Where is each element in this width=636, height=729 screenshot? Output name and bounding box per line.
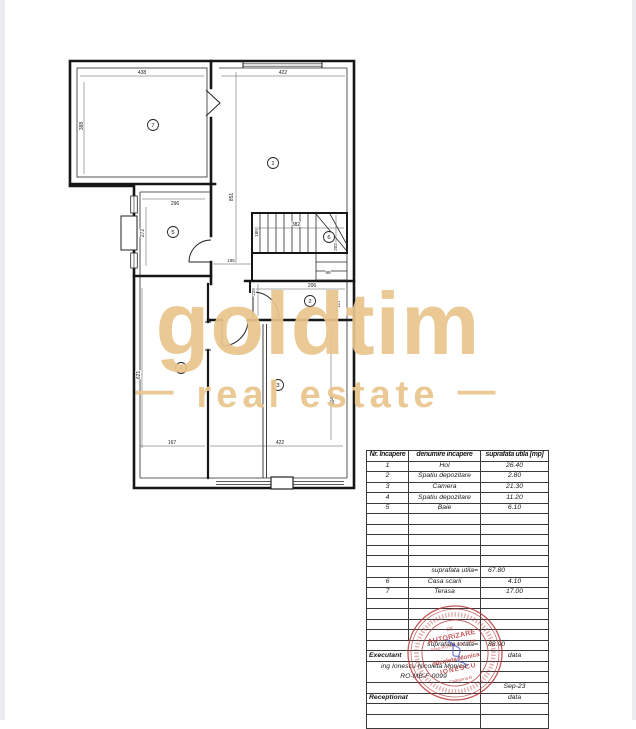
cell-area: 6.10 — [481, 503, 549, 514]
dimension-label: 180 — [254, 229, 259, 237]
door-arc-room5 — [189, 240, 211, 262]
dimension-label: 382 — [292, 222, 301, 228]
svg-text:5: 5 — [171, 230, 174, 236]
cell-nr: 6 — [367, 577, 409, 588]
stamp-rim-text-ring — [409, 607, 500, 698]
dimension-label: 272 — [140, 229, 146, 238]
cell-nr: 4 — [367, 493, 409, 504]
cell-area: 4.10 — [481, 577, 549, 588]
subtotal-label: suprafata utila= — [409, 567, 481, 578]
room-number-1: 1 — [268, 158, 279, 169]
cell-area: 11.20 — [481, 493, 549, 504]
cell-name: Casa scarii — [409, 577, 481, 588]
door-jambs-room4 — [205, 322, 211, 350]
empty-row — [367, 535, 549, 546]
door-opening-symbol — [206, 90, 220, 116]
cell-nr: 2 — [367, 472, 409, 483]
room-number-labels: 7 1 5 6 2 4 3 — [148, 120, 335, 391]
cell-name: Camera — [409, 482, 481, 493]
doors-group — [189, 90, 279, 350]
table-header-row: Nr. Incapere denumire incapere suprafata… — [367, 451, 549, 462]
table-row: 2 Spatiu depozitare 2.80 — [367, 472, 549, 483]
cell-area: 21.30 — [481, 482, 549, 493]
cell-name: Baie — [409, 503, 481, 514]
dimension-label: 117 — [336, 300, 341, 308]
room-number-6: 6 — [324, 232, 335, 243]
dimension-label: 422 — [279, 70, 288, 76]
authorization-stamp: DE AUTORIZARE Seria RO-MB-F, nr. 0099 Ni… — [391, 592, 519, 714]
stamp-text: DE — [446, 626, 455, 633]
dimension-label: 422 — [276, 440, 285, 446]
cell-name: Hol — [409, 461, 481, 472]
cell-area: 2.80 — [481, 472, 549, 483]
empty-row — [367, 556, 549, 567]
window-sill-box — [121, 216, 137, 250]
cell-name: Spatiu depozitare — [409, 493, 481, 504]
dimension-label: 504 — [330, 397, 336, 406]
svg-text:1: 1 — [271, 161, 274, 167]
dimension-lines-group — [80, 72, 345, 448]
svg-text:2: 2 — [308, 299, 311, 305]
empty-row — [367, 514, 549, 525]
cell-nr: 3 — [367, 482, 409, 493]
table-header-name: denumire incapere — [409, 451, 481, 462]
table-header-nr: Nr. Incapere — [367, 451, 409, 462]
subtotal-value: 67.80 — [481, 567, 549, 578]
cell-name: Spatiu depozitare — [409, 472, 481, 483]
table-row: 4 Spatiu depozitare 11.20 — [367, 493, 549, 504]
empty-row — [367, 714, 549, 728]
cell-nr: 1 — [367, 461, 409, 472]
dimension-label: 195 — [227, 258, 235, 263]
table-header-area: suprafata utila [mp] — [481, 451, 549, 462]
table-row: 5 Baie 6.10 — [367, 503, 549, 514]
dimension-label: 229 — [251, 288, 256, 296]
dimension-label: 99 — [325, 270, 331, 275]
room-number-4: 4 — [176, 363, 187, 374]
empty-row — [367, 545, 549, 556]
cell-nr: 5 — [367, 503, 409, 514]
svg-text:7: 7 — [151, 123, 154, 129]
room-number-3: 3 — [273, 380, 284, 391]
window-center-box — [271, 477, 293, 489]
door-arc-room3 — [222, 320, 248, 346]
room-number-7: 7 — [148, 120, 159, 131]
room-number-5: 5 — [168, 227, 179, 238]
table-row: 6 Casa scarii 4.10 — [367, 577, 549, 588]
dimension-label: 167 — [168, 440, 177, 446]
subtotal-row: suprafata utila= 67.80 — [367, 567, 549, 578]
table-row: 3 Camera 21.30 — [367, 482, 549, 493]
room-number-2: 2 — [305, 296, 316, 307]
cell-area: 26.40 — [481, 461, 549, 472]
door-arc-room2 — [253, 292, 279, 318]
dimension-label: 621 — [136, 371, 142, 380]
empty-row — [367, 524, 549, 535]
table-row: 1 Hol 26.40 — [367, 461, 549, 472]
svg-text:3: 3 — [276, 383, 279, 389]
dimension-label: 851 — [229, 193, 235, 202]
dimension-label: 296 — [171, 201, 180, 207]
dimension-label: 388 — [79, 122, 85, 131]
stair-treads — [260, 214, 316, 252]
svg-text:6: 6 — [327, 235, 330, 241]
walls-group — [70, 61, 354, 488]
dimension-label: 438 — [138, 70, 147, 76]
dimension-label: 206 — [308, 283, 317, 289]
dimension-label: 202 — [333, 243, 338, 251]
stair-landing — [316, 253, 347, 280]
